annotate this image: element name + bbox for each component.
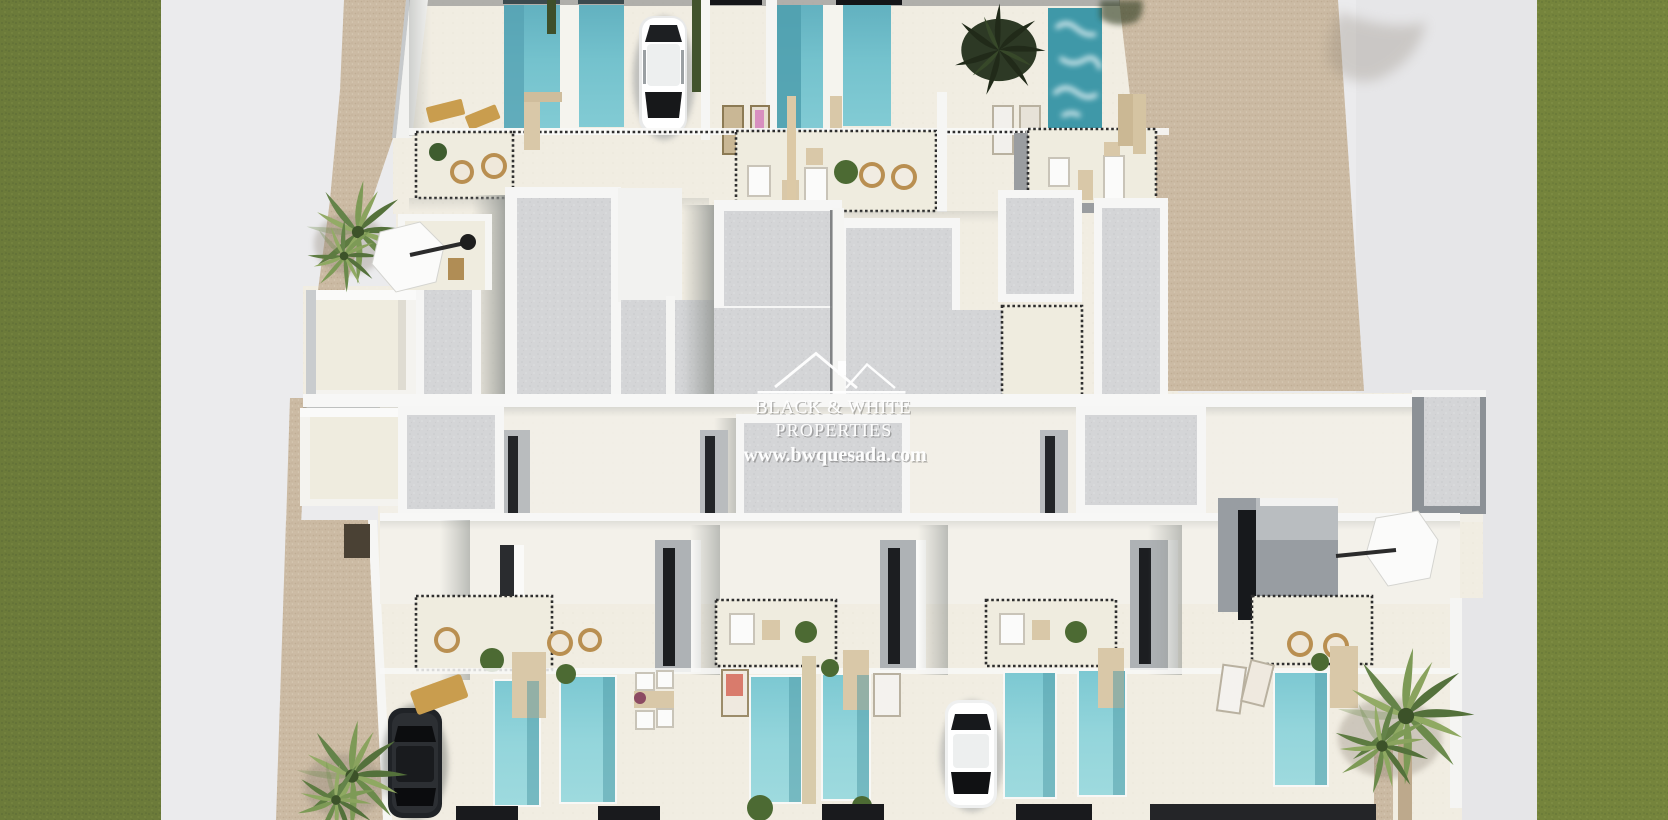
svg-text:www.bwquesada.com: www.bwquesada.com [743,444,927,466]
svg-text:PROPERTIES: PROPERTIES [776,420,893,440]
svg-text:BLACK & WHITE: BLACK & WHITE [755,397,911,418]
